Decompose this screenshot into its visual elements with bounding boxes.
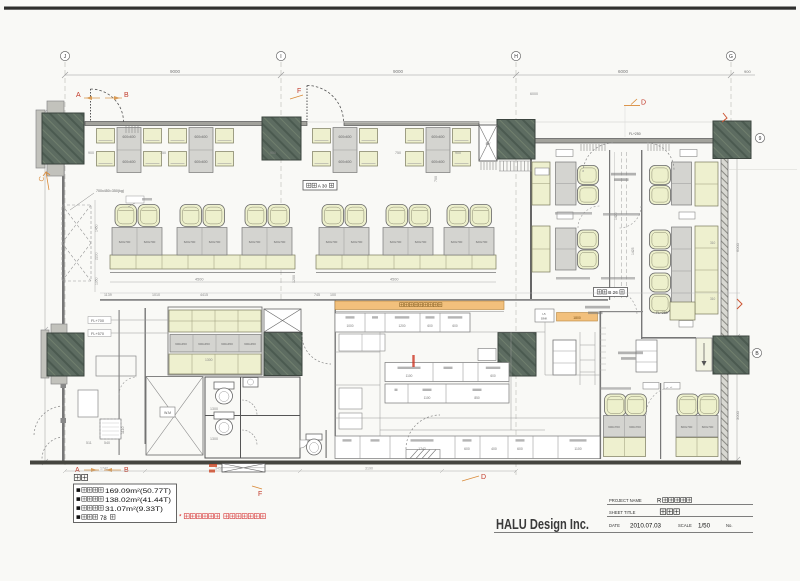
svg-text:R: R bbox=[657, 499, 662, 505]
svg-text:600x450: 600x450 bbox=[175, 342, 187, 346]
svg-text:2200: 2200 bbox=[95, 252, 99, 260]
svg-text:SINK: SINK bbox=[541, 317, 548, 321]
svg-text:745: 745 bbox=[314, 293, 320, 297]
svg-text:900: 900 bbox=[455, 151, 461, 155]
svg-text:F: F bbox=[258, 491, 262, 498]
svg-text:620x700: 620x700 bbox=[390, 240, 402, 244]
svg-text:600: 600 bbox=[517, 447, 523, 451]
svg-text:1139: 1139 bbox=[104, 293, 112, 297]
svg-text:4415: 4415 bbox=[200, 293, 208, 297]
svg-text:600x600: 600x600 bbox=[431, 135, 444, 139]
svg-text:1200: 1200 bbox=[292, 275, 296, 283]
svg-text:700x450=350(kg): 700x450=350(kg) bbox=[96, 189, 124, 193]
svg-text:600x450: 600x450 bbox=[198, 342, 210, 346]
svg-text:600x450: 600x450 bbox=[221, 342, 233, 346]
svg-text:900: 900 bbox=[744, 69, 751, 74]
svg-text:EV: EV bbox=[486, 142, 491, 146]
svg-text:9000: 9000 bbox=[393, 69, 404, 74]
svg-text:1110: 1110 bbox=[121, 427, 125, 434]
svg-text:1742: 1742 bbox=[100, 467, 108, 471]
svg-text:620x700: 620x700 bbox=[119, 240, 131, 244]
svg-text:400: 400 bbox=[491, 447, 497, 451]
svg-text:620x700: 620x700 bbox=[249, 240, 261, 244]
svg-text:600x700: 600x700 bbox=[681, 425, 693, 429]
svg-text:W.M: W.M bbox=[164, 411, 171, 415]
svg-text:1100: 1100 bbox=[574, 447, 581, 451]
svg-text:78: 78 bbox=[100, 516, 107, 522]
svg-text:600: 600 bbox=[490, 374, 496, 378]
svg-text:1300: 1300 bbox=[210, 407, 218, 411]
svg-text:620x700: 620x700 bbox=[351, 240, 363, 244]
svg-text:DATE: DATE bbox=[609, 523, 620, 528]
svg-text:600x600: 600x600 bbox=[194, 135, 207, 139]
svg-text:310: 310 bbox=[710, 297, 716, 301]
svg-text:900: 900 bbox=[88, 151, 94, 155]
svg-text:620x700: 620x700 bbox=[209, 240, 221, 244]
svg-text:850: 850 bbox=[474, 396, 480, 400]
svg-text:1300: 1300 bbox=[205, 358, 213, 362]
svg-text:No.: No. bbox=[726, 523, 733, 528]
svg-text:1100: 1100 bbox=[424, 396, 431, 400]
svg-text:600x600: 600x600 bbox=[194, 160, 207, 164]
svg-text:9000: 9000 bbox=[170, 69, 181, 74]
svg-text:1010: 1010 bbox=[152, 293, 160, 297]
svg-text:D: D bbox=[641, 100, 646, 107]
svg-text:A: A bbox=[76, 92, 81, 99]
svg-text:G: G bbox=[729, 54, 733, 60]
svg-text:750: 750 bbox=[160, 151, 166, 155]
svg-text:1000: 1000 bbox=[346, 324, 353, 328]
svg-text:PROJECT NAME: PROJECT NAME bbox=[609, 498, 642, 503]
svg-text:4500: 4500 bbox=[195, 278, 203, 282]
svg-text:A 30: A 30 bbox=[318, 184, 328, 189]
svg-text:31.07m²(9.33T): 31.07m²(9.33T) bbox=[105, 507, 163, 513]
svg-text:1742: 1742 bbox=[418, 447, 426, 451]
svg-text:3000: 3000 bbox=[735, 410, 740, 420]
svg-text:1100: 1100 bbox=[406, 374, 413, 378]
svg-text:I: I bbox=[280, 54, 281, 60]
svg-text:B: B bbox=[124, 467, 129, 474]
svg-text:FL+250: FL+250 bbox=[656, 311, 668, 315]
svg-text:540: 540 bbox=[104, 441, 110, 445]
svg-text:1425: 1425 bbox=[631, 247, 635, 255]
svg-text:6000: 6000 bbox=[735, 242, 740, 252]
svg-text:SCALE: SCALE bbox=[678, 523, 692, 528]
svg-text:6000: 6000 bbox=[618, 69, 629, 74]
svg-text:620x700: 620x700 bbox=[184, 240, 196, 244]
svg-text:1450: 1450 bbox=[95, 224, 99, 232]
svg-text:620x700: 620x700 bbox=[476, 240, 488, 244]
svg-text:600: 600 bbox=[452, 324, 458, 328]
svg-text:620x700: 620x700 bbox=[415, 240, 427, 244]
svg-text:H: H bbox=[514, 54, 518, 60]
svg-text:600x700: 600x700 bbox=[702, 425, 714, 429]
svg-text:A: A bbox=[75, 467, 80, 474]
svg-text:511: 511 bbox=[86, 441, 92, 445]
svg-text:1300: 1300 bbox=[210, 437, 218, 441]
svg-text:FL+570: FL+570 bbox=[91, 332, 104, 336]
svg-text:600x450: 600x450 bbox=[244, 342, 256, 346]
svg-text:FL+700: FL+700 bbox=[91, 319, 104, 323]
svg-text:600x600: 600x600 bbox=[338, 160, 351, 164]
svg-text:SHEET TITLE: SHEET TITLE bbox=[609, 510, 636, 515]
svg-text:B 26: B 26 bbox=[608, 290, 618, 295]
svg-text:L5: L5 bbox=[542, 312, 546, 316]
svg-text:310: 310 bbox=[710, 241, 716, 245]
svg-text:1350: 1350 bbox=[95, 277, 99, 285]
svg-text:1800: 1800 bbox=[573, 316, 581, 320]
svg-text:1200: 1200 bbox=[398, 324, 405, 328]
svg-text:620x700: 620x700 bbox=[326, 240, 338, 244]
svg-text:2010.07.03: 2010.07.03 bbox=[630, 523, 662, 530]
svg-text:138.02m²(41.44T): 138.02m²(41.44T) bbox=[105, 498, 171, 504]
svg-text:600x600: 600x600 bbox=[122, 160, 135, 164]
svg-text:600x600: 600x600 bbox=[431, 160, 444, 164]
svg-text:600: 600 bbox=[464, 447, 470, 451]
svg-text:3190: 3190 bbox=[365, 467, 373, 471]
svg-text:700: 700 bbox=[434, 176, 438, 182]
svg-text:100: 100 bbox=[330, 293, 336, 297]
svg-text:600x600: 600x600 bbox=[338, 135, 351, 139]
svg-text:FL+250: FL+250 bbox=[629, 132, 641, 136]
svg-text:900: 900 bbox=[270, 151, 276, 155]
svg-text:620x700: 620x700 bbox=[274, 240, 286, 244]
svg-text:B: B bbox=[124, 92, 129, 99]
svg-text:HALU Design Inc.: HALU Design Inc. bbox=[496, 516, 589, 533]
svg-text:750: 750 bbox=[395, 151, 401, 155]
svg-text:600x700: 600x700 bbox=[608, 425, 620, 429]
svg-text:F: F bbox=[297, 88, 301, 95]
svg-text:600: 600 bbox=[427, 324, 433, 328]
svg-text:D: D bbox=[481, 474, 486, 481]
svg-text:600x600: 600x600 bbox=[122, 135, 135, 139]
svg-text:600x700: 600x700 bbox=[629, 425, 641, 429]
svg-text:620x700: 620x700 bbox=[144, 240, 156, 244]
svg-text:9: 9 bbox=[759, 136, 762, 142]
svg-text:6000: 6000 bbox=[530, 92, 538, 96]
svg-text:1/50: 1/50 bbox=[698, 523, 711, 530]
svg-text:169.09m²(50.77T): 169.09m²(50.77T) bbox=[105, 489, 171, 495]
svg-text:620x700: 620x700 bbox=[451, 240, 463, 244]
svg-text:4500: 4500 bbox=[390, 278, 398, 282]
